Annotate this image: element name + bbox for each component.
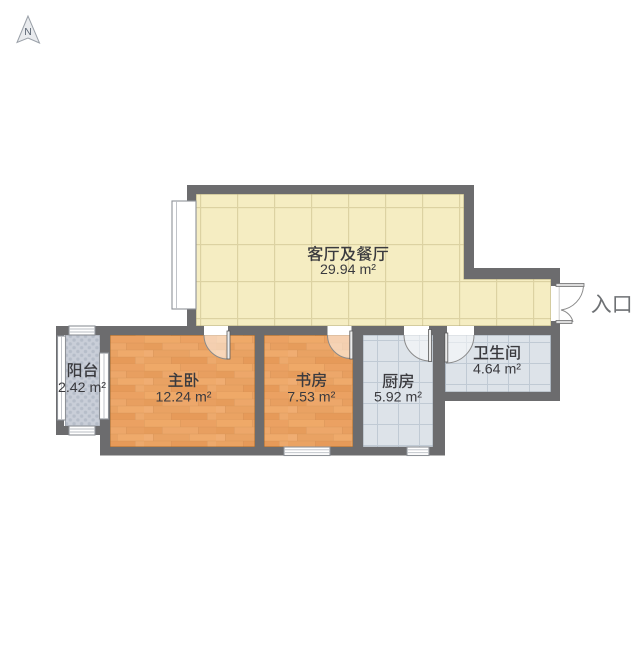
svg-text:29.94 m²: 29.94 m² [320,262,376,278]
svg-text:N: N [24,26,32,38]
svg-text:2.42 m²: 2.42 m² [58,380,106,396]
svg-text:4.64 m²: 4.64 m² [473,361,521,377]
svg-text:12.24 m²: 12.24 m² [156,390,212,406]
svg-text:5.92 m²: 5.92 m² [374,390,422,406]
svg-text:7.53 m²: 7.53 m² [287,389,335,405]
